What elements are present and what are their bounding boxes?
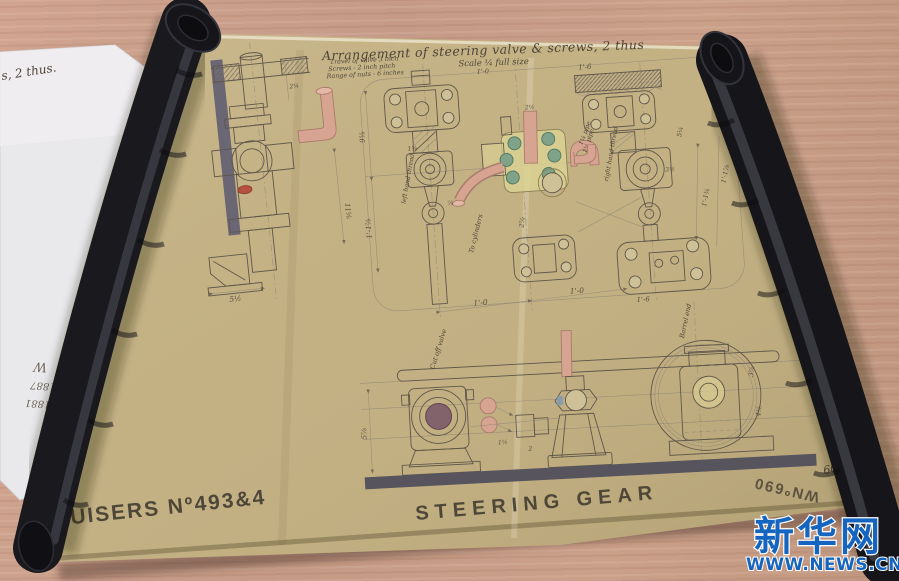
photo-overlay: s, 2 thus. 1881 1887 W Arrangement of st…: [0, 0, 899, 581]
dim-label: ⅞: [447, 200, 453, 207]
blue-accent: [557, 396, 563, 405]
dim-label: 1'-0: [473, 298, 488, 308]
copper-pipe-section: [480, 397, 497, 414]
dim-label: 9⅝: [358, 131, 367, 143]
bolt-head: [547, 149, 561, 163]
dim-label: 1'-1⅞: [364, 218, 373, 239]
dim-label: 2½: [524, 104, 535, 112]
dim-label: 3½: [665, 166, 675, 174]
watermark: 新华网 WWW.NEWS.CN: [746, 514, 899, 575]
dim-label: 1'-6: [636, 295, 650, 304]
dim-label: 1'-0: [570, 286, 585, 296]
drawing-scale-sub: 1'-0: [477, 67, 490, 75]
watermark-site: WWW.NEWS.CN: [746, 555, 899, 575]
bolt-head: [541, 132, 555, 146]
dim-label: 1½: [498, 439, 508, 447]
copper-spindle: [524, 111, 538, 163]
dim-label: 1'-6: [578, 63, 592, 72]
dim-label: 11⅝: [343, 203, 353, 220]
bolt-head: [506, 171, 520, 185]
dim-label: 2¼: [288, 82, 299, 90]
dim-label: 4⅝: [754, 405, 763, 418]
notes-block: Travel of valve 3 inch Screws - 2 inch p…: [325, 55, 405, 80]
photo-of-steering-gear-drawing: s, 2 thus. 1881 1887 W Arrangement of st…: [0, 0, 899, 581]
dim-label: 5½: [229, 294, 242, 304]
bolt-head: [507, 136, 521, 150]
dim-label: 2⅞: [517, 216, 527, 229]
dim-label: 2: [527, 446, 532, 453]
watermark-brand: 新华网: [754, 514, 883, 560]
dim-label: 3⅞: [747, 365, 756, 377]
dim-label: 1⅛: [407, 145, 417, 153]
dim-label: 5⅞: [360, 428, 369, 440]
